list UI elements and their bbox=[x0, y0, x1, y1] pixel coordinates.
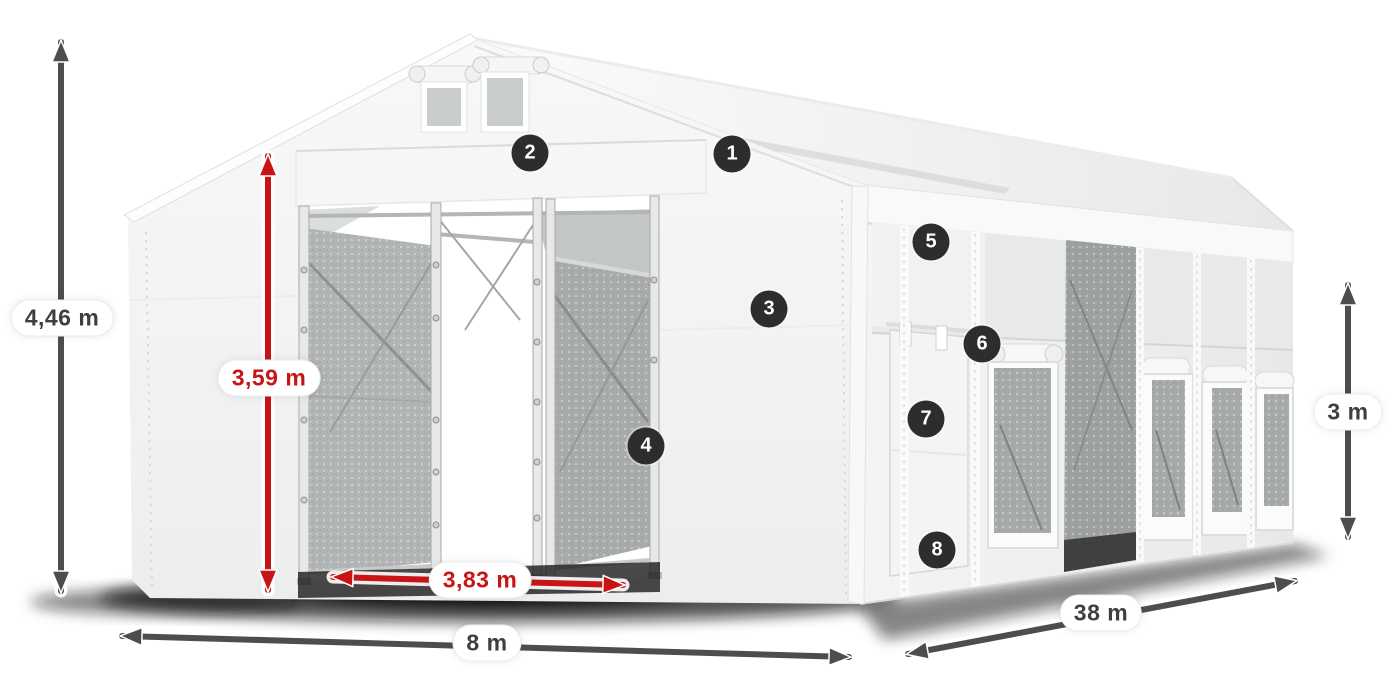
corner-post bbox=[848, 186, 868, 604]
dimension-label-length: 38 m bbox=[1061, 596, 1141, 631]
side-window-1 bbox=[987, 344, 1063, 548]
side-window-3 bbox=[1202, 366, 1250, 535]
side-window-4 bbox=[1255, 372, 1294, 530]
callout-badge-4: 4 bbox=[628, 428, 665, 465]
callout-badge-8: 8 bbox=[919, 532, 956, 569]
callout-badge-6: 6 bbox=[964, 326, 1001, 363]
side-window-2 bbox=[1140, 358, 1193, 540]
dimension-label-total-height: 4,46 m bbox=[12, 301, 113, 336]
mesh-door-left bbox=[304, 228, 436, 574]
mesh-door-right bbox=[548, 258, 652, 570]
callout-badge-3: 3 bbox=[751, 291, 788, 328]
dimension-label-side-height: 3 m bbox=[1314, 395, 1381, 430]
callout-badge-5: 5 bbox=[913, 224, 950, 261]
callout-badge-1: 1 bbox=[714, 136, 751, 173]
dimension-label-front-width: 8 m bbox=[453, 626, 520, 661]
tent-illustration bbox=[0, 0, 1400, 700]
callout-badge-2: 2 bbox=[512, 135, 549, 172]
side-open-bay bbox=[1064, 240, 1136, 572]
tent-dimension-diagram: 4,46 m 3,59 m 3,83 m 8 m 38 m 3 m 1 2 3 … bbox=[0, 0, 1400, 700]
dimension-label-entrance-width: 3,83 m bbox=[430, 563, 531, 598]
callout-badge-7: 7 bbox=[908, 401, 945, 438]
dimension-label-entrance-height: 3,59 m bbox=[219, 361, 320, 396]
entrance-openings bbox=[297, 196, 662, 598]
